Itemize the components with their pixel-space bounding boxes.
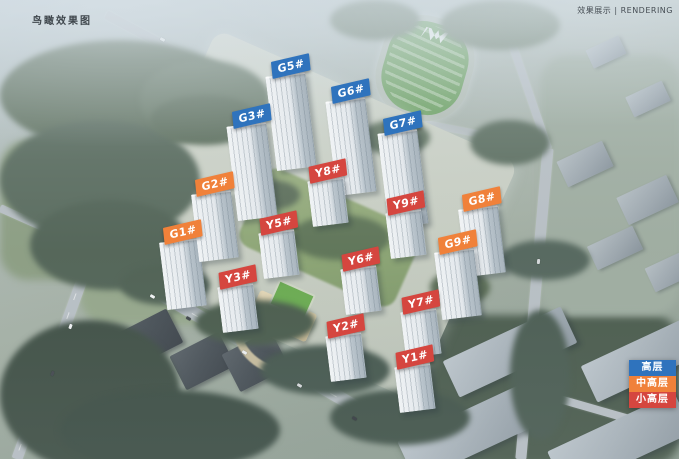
markers-layer: G1#G2#G3#G5#G6#G7#G8#G9#Y1#Y2#Y3#Y5#Y6#Y… <box>0 0 679 459</box>
legend: 高层 中高层 小高层 <box>629 360 676 408</box>
tower-y3 <box>217 283 258 333</box>
legend-item-high-rise: 高层 <box>629 360 676 376</box>
tower-g9 <box>434 248 482 320</box>
tower-y6 <box>340 265 381 315</box>
legend-item-small-high-rise: 小高层 <box>629 392 676 408</box>
legend-item-mid-high-rise: 中高层 <box>629 376 676 392</box>
tower-y9 <box>385 209 426 259</box>
aerial-rendering-view: G1#G2#G3#G5#G6#G7#G8#G9#Y1#Y2#Y3#Y5#Y6#Y… <box>0 0 679 459</box>
caption-rendering: 效果展示 | RENDERING <box>577 5 673 16</box>
tower-y1 <box>394 363 435 413</box>
tower-y2 <box>325 332 366 382</box>
caption-aerial-view: 鸟瞰效果图 <box>32 12 92 27</box>
tower-y5 <box>258 229 299 279</box>
tower-y8 <box>307 177 348 227</box>
